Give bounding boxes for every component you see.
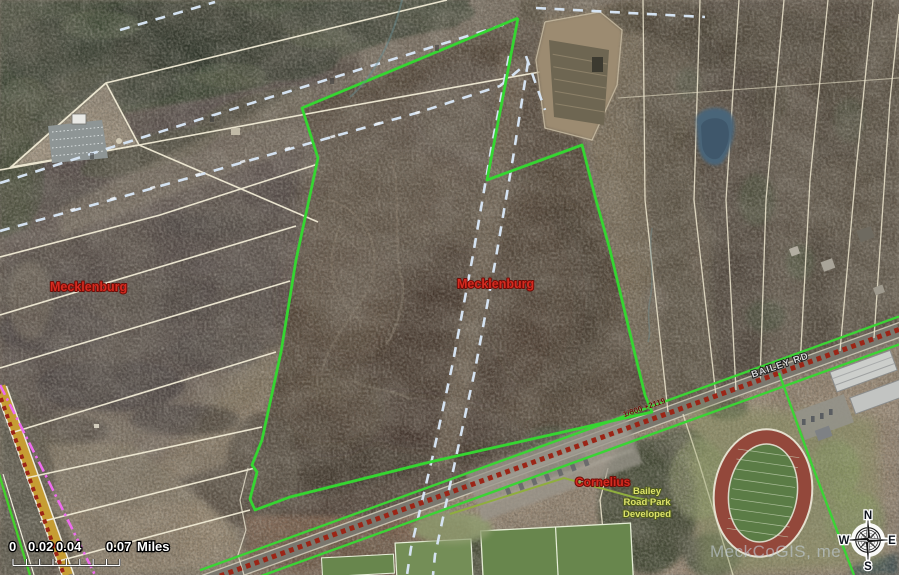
svg-text:Miles: Miles (137, 539, 170, 554)
svg-text:Cornelius: Cornelius (575, 475, 631, 489)
svg-text:W: W (839, 535, 850, 547)
svg-text:MeckCoGIS, me: MeckCoGIS, me (710, 542, 841, 561)
svg-text:Mecklenburg: Mecklenburg (50, 280, 127, 294)
svg-text:0.02: 0.02 (28, 539, 53, 554)
svg-text:Mecklenburg: Mecklenburg (457, 277, 534, 291)
svg-text:Road Park: Road Park (624, 497, 672, 508)
svg-text:0: 0 (9, 539, 16, 554)
svg-text:N: N (864, 510, 872, 522)
svg-text:Bailey: Bailey (633, 486, 662, 497)
svg-text:Developed: Developed (623, 509, 671, 520)
svg-text:S: S (864, 561, 872, 573)
svg-text:0.07: 0.07 (106, 539, 131, 554)
svg-text:E: E (888, 535, 896, 547)
svg-text:0.04: 0.04 (56, 539, 82, 554)
